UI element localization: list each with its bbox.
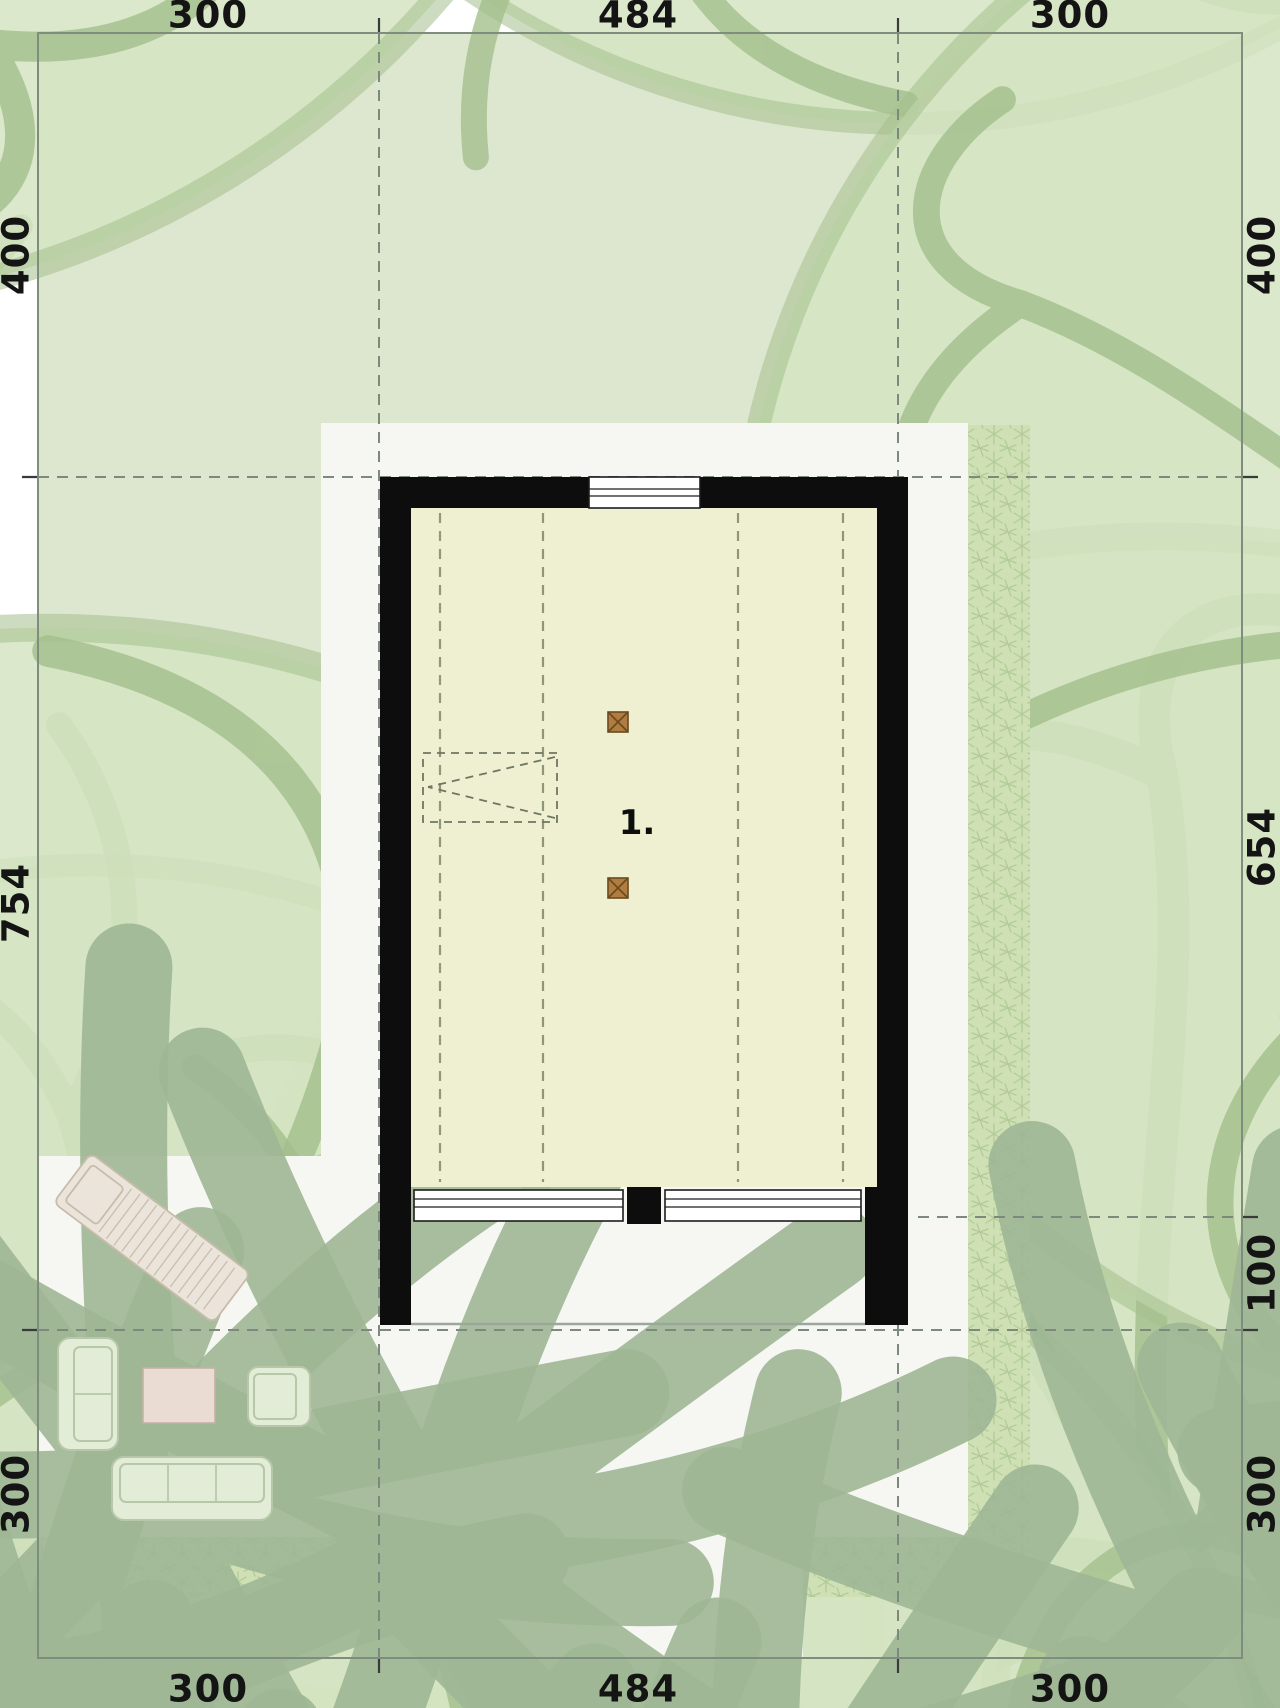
dim-top-right: 300 (1030, 0, 1110, 34)
dim-bottom-center: 484 (598, 1671, 678, 1708)
armchair-cushion (254, 1374, 296, 1419)
building-group (380, 477, 908, 1325)
pier-left (380, 1187, 411, 1325)
dim-right-top: 400 (1244, 215, 1280, 295)
dim-top-left: 300 (168, 0, 248, 34)
garage-door-left (414, 1190, 623, 1221)
room-number-label: 1. (619, 803, 656, 843)
pier-right (865, 1187, 908, 1325)
site-plan-page: 300 484 300 300 484 300 400 754 300 400 … (0, 0, 1280, 1708)
dim-right-lower: 100 (1244, 1233, 1280, 1313)
dim-left-top: 400 (0, 215, 35, 295)
post-icon (608, 878, 628, 898)
dim-bottom-left: 300 (168, 1671, 248, 1708)
dim-left-middle: 754 (0, 863, 35, 943)
dim-right-bottom: 300 (1244, 1454, 1280, 1534)
coffee-table (143, 1368, 215, 1423)
window (589, 477, 700, 508)
dim-top-center: 484 (598, 0, 678, 34)
site-plan-drawing (0, 0, 1280, 1708)
building-interior (411, 508, 877, 1187)
sofa-three-seat-cushions (120, 1464, 264, 1502)
dim-left-bottom: 300 (0, 1454, 35, 1534)
post-icon (608, 712, 628, 732)
garage-door-right (665, 1190, 861, 1221)
dim-bottom-right: 300 (1030, 1671, 1110, 1708)
pier-center (627, 1187, 661, 1224)
dim-right-upper: 654 (1244, 807, 1280, 887)
